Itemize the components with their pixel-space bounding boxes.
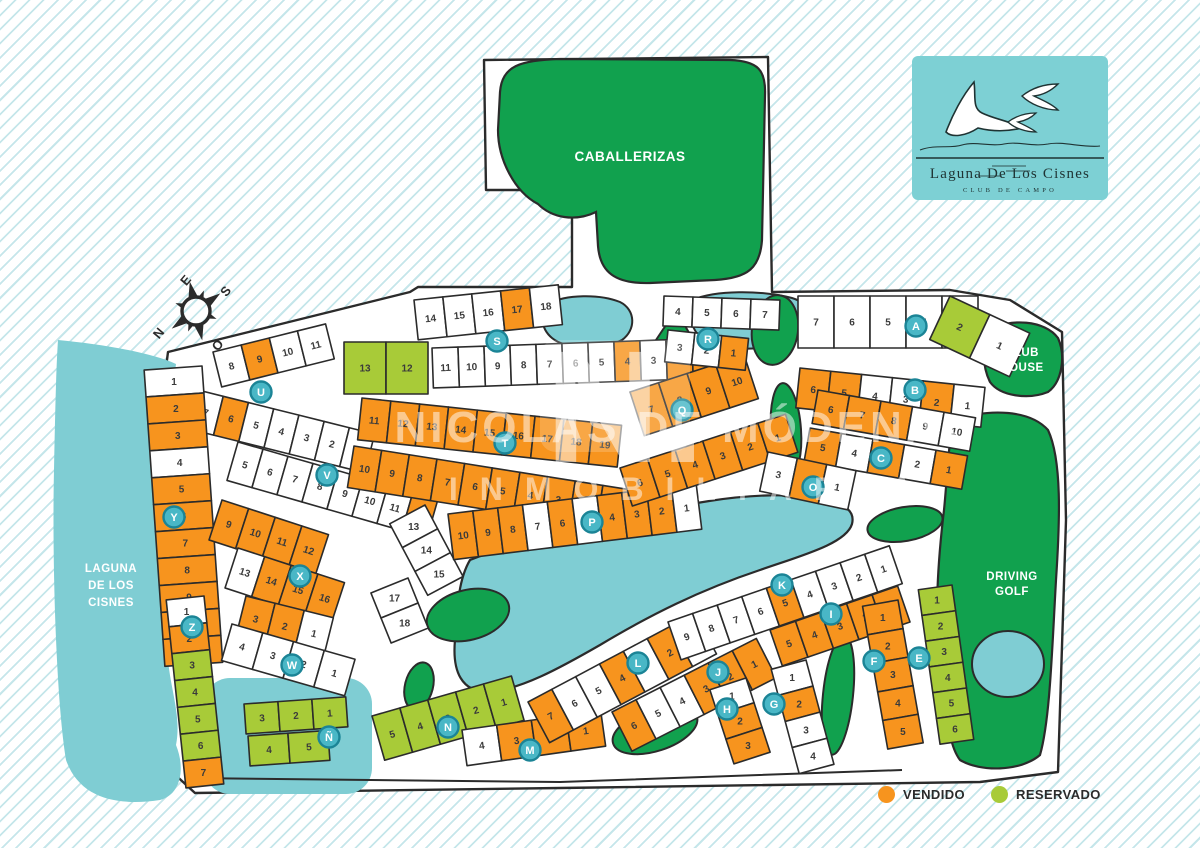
lot-number: 3 [189, 661, 195, 672]
vendido-dot-icon [878, 786, 895, 803]
lot-number: 3 [890, 670, 896, 681]
section-badge-letter: Y [170, 512, 178, 524]
reservado-dot-icon [991, 786, 1008, 803]
logo-title: Laguna De Los Cisnes [930, 166, 1090, 182]
compass-spike [172, 315, 189, 329]
section-badge-letter: H [723, 704, 731, 716]
lot-number: 15 [453, 310, 466, 322]
lot-number: 14 [425, 313, 438, 325]
legend-reservado-label: RESERVADO [1016, 787, 1101, 802]
section-badge-letter: J [715, 667, 721, 679]
driving-golf-pond [972, 631, 1044, 697]
caballerizas-area [498, 59, 765, 283]
watermark-line1: NICOLÁS DE MÓDENA。 [394, 402, 989, 452]
lot-number: 18 [399, 619, 411, 630]
section-badge-letter: E [915, 653, 922, 665]
lot-number: 13 [359, 364, 371, 375]
lot-number: 6 [733, 309, 739, 320]
lot-number: 9 [495, 361, 501, 372]
caballerizas-label: CABALLERIZAS [575, 149, 686, 164]
lot-number: 4 [895, 699, 901, 710]
lot-number: 7 [762, 310, 768, 321]
compass-letter-N: N [150, 325, 168, 342]
lot-number: 16 [482, 307, 495, 319]
lot-number: 5 [195, 714, 201, 725]
section-badge-letter: R [704, 334, 712, 346]
lot-number: 7 [201, 768, 207, 779]
section-badge-letter: U [257, 387, 265, 399]
legend-item-vendido: VENDIDO [878, 786, 965, 803]
lot-number: 17 [389, 594, 401, 605]
laguna-label-1: LAGUNA [85, 563, 137, 575]
lot-number: 2 [173, 404, 179, 415]
lot-number: 8 [184, 566, 190, 577]
lot-number: 12 [401, 364, 413, 375]
section-badge-letter: P [588, 517, 595, 529]
lot-number: 15 [433, 569, 445, 580]
lot-number: 5 [179, 485, 185, 496]
lot-number: 13 [408, 522, 420, 533]
lot-number: 5 [900, 727, 906, 738]
lot-number: 1 [934, 596, 940, 607]
lot-number: 2 [885, 641, 891, 652]
lot-number: 8 [521, 360, 527, 371]
lot-number: 10 [457, 530, 470, 542]
section-badge-letter: X [296, 571, 304, 583]
lot-number: 2 [796, 699, 802, 710]
laguna-label-2: DE LOS [88, 580, 134, 592]
section-badge-letter: B [911, 385, 919, 397]
section-badge-letter: V [323, 470, 331, 482]
lot-number: 4 [177, 458, 183, 469]
logo-subtitle: CLUB DE CAMPO [963, 187, 1057, 194]
section-badge-letter: C [877, 453, 885, 465]
section-badge-letter: I [829, 609, 832, 621]
section-badge-letter: Z [189, 622, 196, 634]
lot-number: 2 [737, 716, 743, 727]
lot-number: 1 [789, 673, 795, 684]
legend-item-reservado: RESERVADO [991, 786, 1101, 803]
section-badge-letter: W [287, 660, 298, 672]
lot-number: 6 [952, 724, 958, 735]
lot-number: 11 [368, 415, 380, 427]
legend: VENDIDO RESERVADO [878, 786, 1101, 803]
lot-number: 3 [175, 431, 181, 442]
driving-golf-label-1: DRIVING [986, 571, 1037, 583]
section-badge-letter: S [493, 336, 500, 348]
lot-number: 4 [945, 673, 951, 684]
lot-number: 10 [466, 362, 478, 373]
lot-number: 4 [810, 751, 816, 762]
club-house-label-2: HOUSE [1000, 362, 1043, 374]
masterplan-map: 1415161718111098765432113128910117654321… [0, 0, 1200, 848]
section-badge-letter: M [525, 745, 534, 757]
lot-number: 5 [949, 699, 955, 710]
compass-spike [204, 293, 221, 307]
lot-number: 10 [358, 464, 371, 477]
section-badge-letter: A [912, 321, 920, 333]
lot-number: 6 [849, 318, 855, 329]
legend-vendido-label: VENDIDO [903, 787, 965, 802]
lot-number: 6 [198, 741, 204, 752]
lot-number: 3 [941, 647, 947, 658]
lot-number: 3 [745, 741, 751, 752]
lot-number: 3 [803, 725, 809, 736]
lot-number: 4 [192, 687, 198, 698]
laguna-label-3: CISNES [88, 597, 134, 609]
section-badge-letter: G [770, 699, 779, 711]
section-badge-letter: Ñ [325, 731, 333, 744]
compass-spike [194, 323, 204, 341]
watermark-line2: INMOBILIARIA [449, 471, 935, 507]
club-house-label-1: CLUB [1005, 347, 1039, 359]
section-badge-letter: K [778, 580, 786, 592]
driving-golf-label-2: GOLF [995, 586, 1029, 598]
lot-number: 11 [440, 363, 451, 374]
lot-number: 14 [421, 546, 433, 557]
lot-number: 5 [885, 318, 891, 329]
lot-number: 7 [813, 318, 819, 329]
section-badge-letter: N [444, 722, 452, 734]
compass-letter-S: S [217, 283, 234, 300]
lot-number: 2 [938, 621, 944, 632]
lot-number: 18 [540, 301, 553, 313]
section-badge-letter: L [635, 658, 642, 670]
lot-number: 17 [511, 304, 524, 316]
lot-number: 1 [880, 613, 886, 624]
logo-card: Laguna De Los Cisnes CLUB DE CAMPO [912, 56, 1108, 200]
section-badge-letter: F [871, 656, 878, 668]
lot-number: 1 [171, 377, 177, 388]
lot-number: 7 [183, 539, 189, 550]
